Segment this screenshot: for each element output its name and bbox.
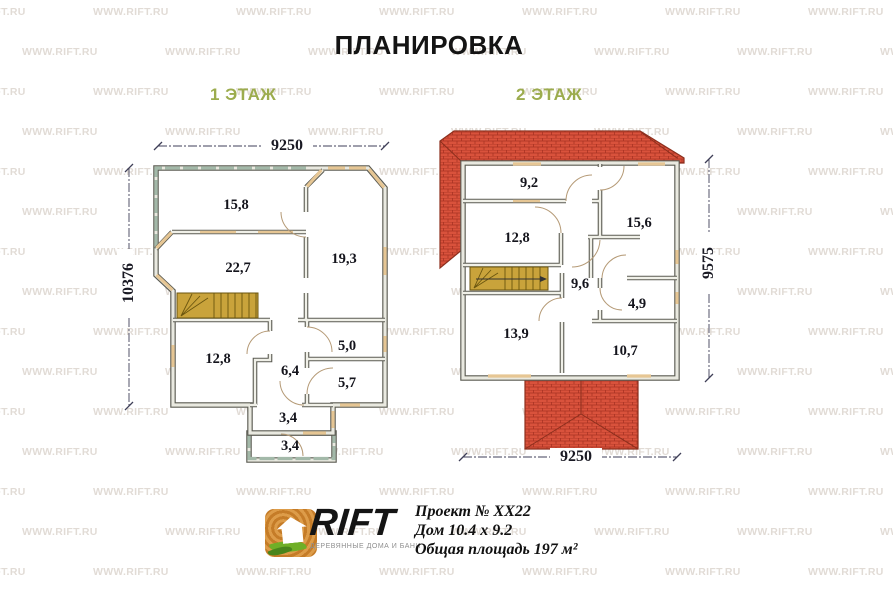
floor1-plan: 15,8 22,7 19,3 12,8 6,4 5,0 5,7 3,4 3,4 <box>156 168 385 460</box>
room-area-label: 3,4 <box>279 410 297 426</box>
dimension-label: 9250 <box>271 137 303 154</box>
house-size: Дом 10.4 х 9.2 <box>415 522 578 541</box>
room-area-label: 6,4 <box>281 363 299 379</box>
room-area-label: 15,8 <box>223 197 248 213</box>
total-area: Общая площадь 197 м² <box>415 541 578 560</box>
project-info: Проект № ХХ22 Дом 10.4 х 9.2 Общая площа… <box>415 503 578 559</box>
floor2-height-dimension: 9575 <box>697 155 717 382</box>
dimension-label: 9575 <box>700 247 717 279</box>
floor2-label: 2 ЭТАЖ <box>516 85 582 105</box>
dimension-label: 9250 <box>560 448 592 465</box>
dimension-label: 10376 <box>120 263 137 303</box>
floor2-porch-roof <box>525 378 638 449</box>
room-area-label: 19,3 <box>331 251 356 267</box>
rift-logo: RIFT ДЕРЕВЯННЫЕ ДОМА И БАНИ <box>310 504 421 550</box>
page-title: ПЛАНИРОВКА <box>0 30 858 61</box>
room-area-label: 13,9 <box>503 326 528 342</box>
room-area-label: 5,7 <box>338 375 356 391</box>
room-area-label: 4,9 <box>628 296 646 312</box>
room-area-label: 12,8 <box>504 230 529 246</box>
brand-tagline: ДЕРЕВЯННЫЕ ДОМА И БАНИ <box>310 543 421 550</box>
room-area-label: 15,6 <box>626 215 651 231</box>
floor1-width-dimension: 9250 <box>154 136 389 154</box>
room-area-label: 12,8 <box>205 351 230 367</box>
floor1-height-dimension: 10376 <box>117 164 137 410</box>
room-area-label: 10,7 <box>612 343 637 359</box>
room-area-label: 5,0 <box>338 338 356 354</box>
floor1-staircase <box>177 293 258 318</box>
project-number: Проект № ХХ22 <box>415 503 578 522</box>
floor2-plan: 9,2 12,8 15,6 9,6 4,9 13,9 10,7 <box>440 131 684 449</box>
floor1-label: 1 ЭТАЖ <box>210 85 276 105</box>
floor2-staircase <box>470 267 548 290</box>
house-icon <box>276 516 309 545</box>
room-area-label: 9,6 <box>571 276 589 292</box>
floorplan-page: WWW.RIFT.RUWWW.RIFT.RUWWW.RIFT.RUWWW.RIF… <box>0 0 893 591</box>
room-area-label: 3,4 <box>281 438 299 454</box>
room-area-label: 22,7 <box>225 260 250 276</box>
floor2-width-dimension: 9250 <box>459 448 681 465</box>
brand-name: RIFT <box>308 504 422 542</box>
room-area-label: 9,2 <box>520 175 538 191</box>
